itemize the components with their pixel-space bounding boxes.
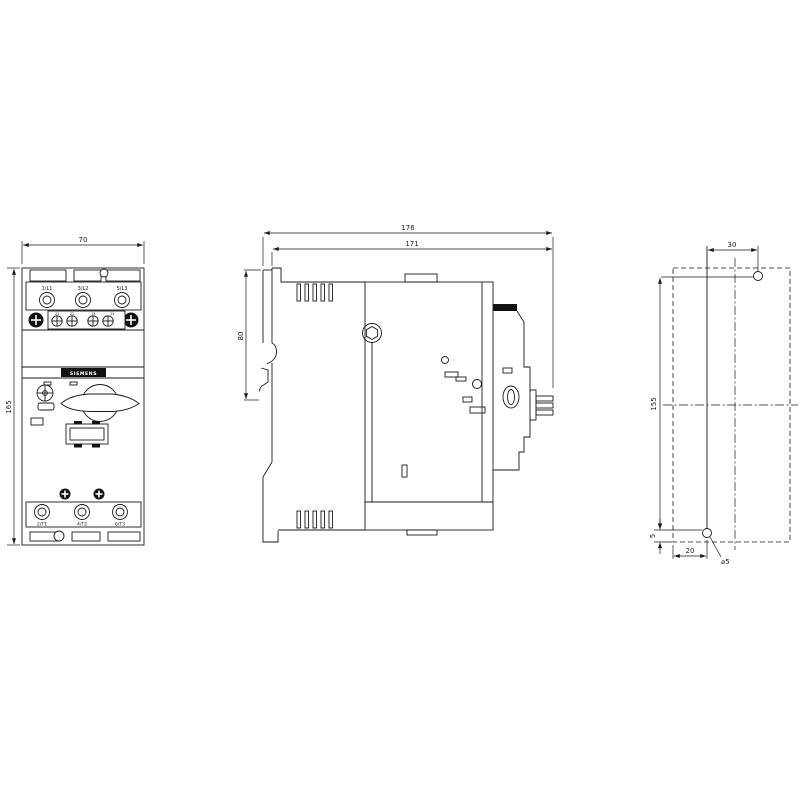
terminal-label-4T2: 4/T2	[77, 522, 87, 528]
terminal-label-2T1: 2/T1	[37, 522, 47, 528]
control-section	[31, 382, 139, 448]
vent-slots-top	[297, 284, 333, 301]
side-front-section	[493, 304, 553, 470]
dim-171: 171	[405, 240, 418, 248]
side-recess-dimension: 80	[237, 270, 261, 400]
knob-shaft	[530, 390, 553, 420]
rotary-handle	[61, 385, 139, 422]
side-marking-bar	[493, 304, 517, 311]
dim-80: 80	[237, 332, 245, 341]
din-rail-profile	[260, 268, 366, 542]
dimensional-drawing: 70 165 1/L1 3/L2 5/L3	[0, 0, 800, 800]
mounting-hole-bottom	[703, 529, 712, 538]
hole-diameter-label: ⌀5	[721, 558, 730, 566]
case-detail-hole	[442, 357, 449, 364]
technical-drawing-page: 70 165 1/L1 3/L2 5/L3	[0, 0, 800, 800]
side-body-depth-dimension: 171	[272, 240, 552, 266]
mounting-hole-top	[754, 272, 763, 281]
case-detail-hole	[473, 380, 482, 389]
brand-label: SIEMENS	[70, 371, 97, 377]
hole-edge-bottom-dimension: 5	[649, 518, 660, 554]
hole-offset-dimension: 30	[708, 241, 757, 250]
adjustment-dial-icon	[37, 385, 53, 401]
terminal-screw-icon	[35, 505, 128, 520]
dim-70: 70	[79, 236, 88, 244]
lower-screw-icon	[60, 489, 105, 500]
aux-label-14: 14	[110, 312, 115, 316]
bottom-cover-slots	[30, 531, 140, 541]
terminal-label-6T3: 6/T3	[115, 522, 125, 528]
dim-20: 20	[686, 547, 695, 555]
terminal-label-1L1: 1/L1	[42, 286, 53, 292]
top-cover-slots	[30, 269, 140, 281]
label-window	[66, 421, 108, 448]
dim-5: 5	[649, 534, 657, 538]
hole-diameter-callout: ⌀5	[710, 537, 730, 566]
dim-155: 155	[650, 397, 658, 410]
dim-165: 165	[5, 400, 13, 413]
dim-176: 176	[401, 224, 415, 232]
terminal-label-3L2: 3/L2	[78, 286, 89, 292]
top-terminal-block: 1/L1 3/L2 5/L3	[26, 282, 141, 310]
side-main-case	[363, 274, 494, 535]
front-width-dimension: 70	[22, 236, 144, 264]
side-view: 176 171 80	[237, 224, 553, 542]
hole-spacing-dimension: 155	[650, 278, 660, 529]
mounting-drill-plan: 30 155 5 20 ⌀5	[649, 241, 798, 566]
brand-badge: SIEMENS	[61, 368, 106, 377]
front-height-dimension: 165	[5, 268, 20, 545]
knob-side-icon	[503, 386, 519, 408]
terminal-label-5L3: 5/L3	[117, 286, 128, 292]
vent-slots-bottom	[297, 511, 333, 528]
terminal-screw-icon	[40, 293, 130, 308]
hole-edge-left-dimension: 20	[673, 540, 707, 559]
bottom-terminal-block: 2/T1 4/T2 6/T3	[26, 502, 141, 528]
front-view: 70 165 1/L1 3/L2 5/L3	[5, 236, 144, 545]
dim-30: 30	[728, 241, 737, 249]
aux-contact-row: 21 22 13 14	[29, 311, 139, 329]
